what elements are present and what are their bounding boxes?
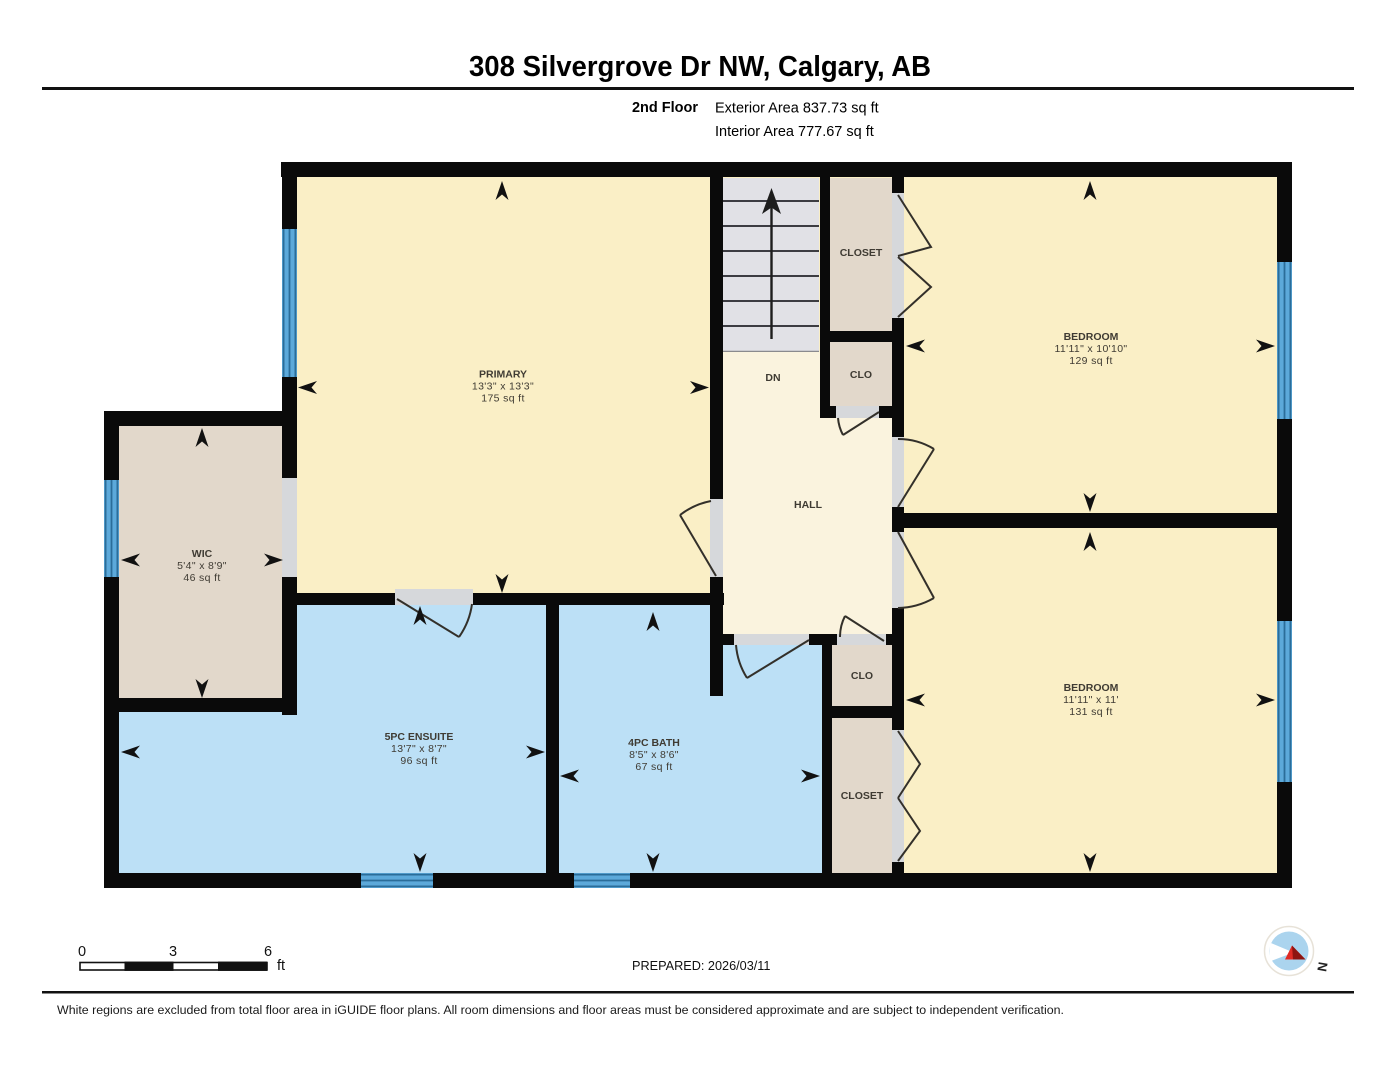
svg-text:11'11" x 10'10": 11'11" x 10'10" xyxy=(1055,343,1128,355)
svg-text:ft: ft xyxy=(277,958,285,974)
svg-text:WIC: WIC xyxy=(192,548,213,560)
svg-text:11'11" x 11': 11'11" x 11' xyxy=(1063,694,1119,706)
svg-text:0: 0 xyxy=(78,944,86,960)
svg-text:5'4" x 8'9": 5'4" x 8'9" xyxy=(177,560,227,572)
svg-text:175 sq ft: 175 sq ft xyxy=(481,393,524,405)
svg-text:BEDROOM: BEDROOM xyxy=(1064,331,1119,343)
svg-text:CLOSET: CLOSET xyxy=(840,247,883,259)
svg-text:46 sq ft: 46 sq ft xyxy=(183,572,220,584)
svg-text:CLOSET: CLOSET xyxy=(841,790,884,802)
svg-text:8'5" x 8'6": 8'5" x 8'6" xyxy=(629,749,679,761)
svg-text:4PC BATH: 4PC BATH xyxy=(628,737,680,749)
svg-text:67 sq ft: 67 sq ft xyxy=(635,761,672,773)
svg-text:PRIMARY: PRIMARY xyxy=(479,369,527,381)
svg-text:308 Silvergrove Dr NW, Calgary: 308 Silvergrove Dr NW, Calgary, AB xyxy=(469,51,931,83)
svg-text:131 sq ft: 131 sq ft xyxy=(1069,706,1112,718)
svg-text:CLO: CLO xyxy=(850,369,872,381)
svg-text:DN: DN xyxy=(765,372,780,384)
svg-text:2nd Floor: 2nd Floor xyxy=(632,100,698,116)
svg-text:96 sq ft: 96 sq ft xyxy=(400,755,437,767)
svg-text:HALL: HALL xyxy=(794,499,823,511)
svg-text:Exterior Area 837.73 sq ft: Exterior Area 837.73 sq ft xyxy=(715,101,879,117)
svg-text:13'7" x 8'7": 13'7" x 8'7" xyxy=(391,743,447,755)
svg-text:3: 3 xyxy=(169,944,177,960)
svg-text:6: 6 xyxy=(264,944,272,960)
svg-text:5PC ENSUITE: 5PC ENSUITE xyxy=(385,731,454,743)
svg-text:Interior Area 777.67 sq ft: Interior Area 777.67 sq ft xyxy=(715,124,874,140)
svg-text:129 sq ft: 129 sq ft xyxy=(1069,355,1112,367)
svg-text:13'3" x 13'3": 13'3" x 13'3" xyxy=(472,381,534,393)
svg-text:White regions are excluded fro: White regions are excluded from total fl… xyxy=(57,1003,1064,1017)
svg-text:BEDROOM: BEDROOM xyxy=(1064,682,1119,694)
svg-text:PREPARED: 2026/03/11: PREPARED: 2026/03/11 xyxy=(632,959,770,973)
svg-text:CLO: CLO xyxy=(851,670,873,682)
